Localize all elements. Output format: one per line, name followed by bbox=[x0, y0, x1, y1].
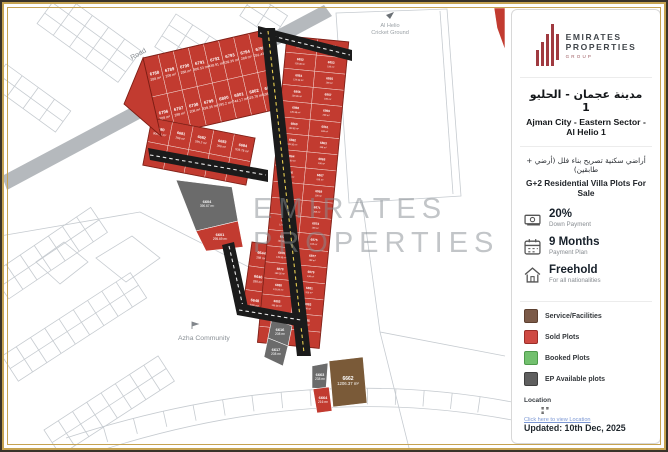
banknote-icon bbox=[524, 210, 541, 227]
road bbox=[222, 242, 249, 315]
location-qr-code bbox=[524, 407, 566, 414]
context-grid bbox=[44, 356, 174, 452]
svg-text:6861: 6861 bbox=[321, 125, 329, 130]
legend-swatch bbox=[524, 351, 538, 365]
plot-6857 bbox=[312, 87, 344, 106]
location-label: Location bbox=[524, 397, 648, 404]
plot-6861 bbox=[309, 120, 341, 139]
logo-line-2: PROPERTIES bbox=[566, 42, 637, 52]
plot bbox=[494, 8, 505, 50]
logo-line-3: GROUP bbox=[566, 54, 637, 59]
flyer-page: RoadAl HelioCricket Ground6788288 m²6789… bbox=[0, 0, 668, 452]
svg-text:6863: 6863 bbox=[320, 141, 328, 146]
feature-label: 9 Months bbox=[549, 236, 599, 248]
svg-text:6858: 6858 bbox=[292, 106, 300, 111]
svg-text:208 m²: 208 m² bbox=[271, 352, 281, 356]
svg-text:6859: 6859 bbox=[323, 109, 331, 114]
title-english: Ajman City - Eastern Sector - Al Helio 1 bbox=[524, 117, 648, 137]
svg-text:6879: 6879 bbox=[307, 270, 315, 275]
svg-text:6862: 6862 bbox=[289, 138, 297, 143]
legend-label: Booked Plots bbox=[545, 355, 590, 362]
divider bbox=[520, 301, 652, 302]
title-arabic: مدينة عجمان - الحليو 1 bbox=[524, 88, 648, 114]
svg-text:208 m²: 208 m² bbox=[275, 332, 285, 336]
feature-label: 20% bbox=[549, 208, 591, 220]
divider bbox=[520, 146, 652, 147]
plot-6859 bbox=[310, 103, 342, 122]
feature-sublabel: Payment Plan bbox=[549, 249, 599, 256]
svg-text:6854: 6854 bbox=[295, 73, 303, 78]
svg-text:6880: 6880 bbox=[275, 283, 283, 288]
feature-sublabel: Down Payment bbox=[549, 221, 591, 228]
svg-text:295.69 m²: 295.69 m² bbox=[213, 237, 227, 241]
svg-text:216 m²: 216 m² bbox=[318, 400, 328, 404]
svg-text:1206.37 m²: 1206.37 m² bbox=[337, 381, 359, 386]
logo-bars-icon bbox=[536, 22, 560, 68]
legend-swatch bbox=[524, 309, 538, 323]
svg-text:6881: 6881 bbox=[306, 286, 314, 291]
context-grid bbox=[0, 64, 71, 132]
calendar-icon bbox=[524, 238, 541, 255]
svg-text:6882: 6882 bbox=[273, 299, 281, 304]
svg-text:6853: 6853 bbox=[328, 60, 336, 65]
feature-payment-plan: 9 Months Payment Plan bbox=[524, 236, 648, 256]
svg-text:6865: 6865 bbox=[318, 157, 326, 162]
svg-text:Cricket Ground: Cricket Ground bbox=[371, 30, 409, 36]
legend-item-booked-plots: Booked Plots bbox=[524, 351, 648, 365]
subtitle-arabic: أراضي سكنية تصريح بناء فلل (أرضي + طابقي… bbox=[524, 156, 648, 174]
legend-label: Sold Plots bbox=[545, 334, 579, 341]
feature-list: 20% Down Payment 9 Months Payment Plan F… bbox=[524, 208, 648, 292]
legend-label: Service/Facilities bbox=[545, 313, 602, 320]
svg-text:6855: 6855 bbox=[326, 76, 334, 81]
legend-item-service-facilities: Service/Facilities bbox=[524, 309, 648, 323]
cricket-ground: Al HelioCricket Ground bbox=[336, 9, 461, 203]
feature-down-payment: 20% Down Payment bbox=[524, 208, 648, 228]
plot-6852 bbox=[284, 52, 316, 71]
svg-text:6878: 6878 bbox=[277, 267, 285, 272]
legend-item-ep-available-plots: EP Available plots bbox=[524, 372, 648, 386]
logo-line-1: EMIRATES bbox=[566, 32, 637, 42]
svg-text:Al Helio: Al Helio bbox=[380, 23, 399, 29]
plot-6856 bbox=[281, 84, 313, 103]
plot-6867 bbox=[304, 168, 336, 187]
legend-swatch bbox=[524, 330, 538, 344]
feature-for-all-nationalities: Freehold For all nationalities bbox=[524, 264, 648, 284]
info-panel: EMIRATES PROPERTIES GROUP مدينة عجمان - … bbox=[511, 9, 661, 444]
cricket-ground-icon bbox=[386, 12, 394, 19]
plot-6855 bbox=[313, 71, 345, 90]
house-icon bbox=[524, 266, 541, 283]
divider bbox=[520, 77, 652, 78]
feature-sublabel: For all nationalities bbox=[549, 277, 601, 284]
feature-label: Freehold bbox=[549, 264, 601, 276]
plot-6854 bbox=[282, 68, 314, 87]
legend-item-sold-plots: Sold Plots bbox=[524, 330, 648, 344]
watermark: EMIRATES bbox=[253, 193, 447, 225]
context-grid bbox=[37, 0, 141, 82]
logo: EMIRATES PROPERTIES GROUP bbox=[524, 22, 648, 68]
updated-date: Updated: 10th Dec, 2025 bbox=[524, 423, 648, 433]
logo-text: EMIRATES PROPERTIES GROUP bbox=[566, 32, 637, 59]
svg-text:6852: 6852 bbox=[297, 57, 305, 62]
community-flag-icon bbox=[192, 322, 198, 329]
community-label: Azha Community bbox=[178, 335, 230, 342]
context-grid bbox=[0, 207, 107, 298]
legend-swatch bbox=[524, 372, 538, 386]
watermark: PROPERTIES bbox=[253, 227, 499, 259]
legend-label: EP Available plots bbox=[545, 376, 605, 383]
plot-6865 bbox=[305, 152, 337, 171]
svg-text:6860: 6860 bbox=[290, 122, 298, 127]
subtitle-english: G+2 Residential Villa Plots For Sale bbox=[524, 178, 648, 198]
svg-text:390.67 m²: 390.67 m² bbox=[200, 204, 214, 208]
svg-text:6856: 6856 bbox=[294, 89, 302, 94]
svg-text:238 m²: 238 m² bbox=[315, 377, 325, 381]
plot-6863 bbox=[307, 136, 339, 155]
svg-text:6867: 6867 bbox=[317, 173, 325, 178]
svg-text:6857: 6857 bbox=[324, 92, 332, 97]
legend: Service/FacilitiesSold PlotsBooked Plots… bbox=[524, 309, 648, 393]
